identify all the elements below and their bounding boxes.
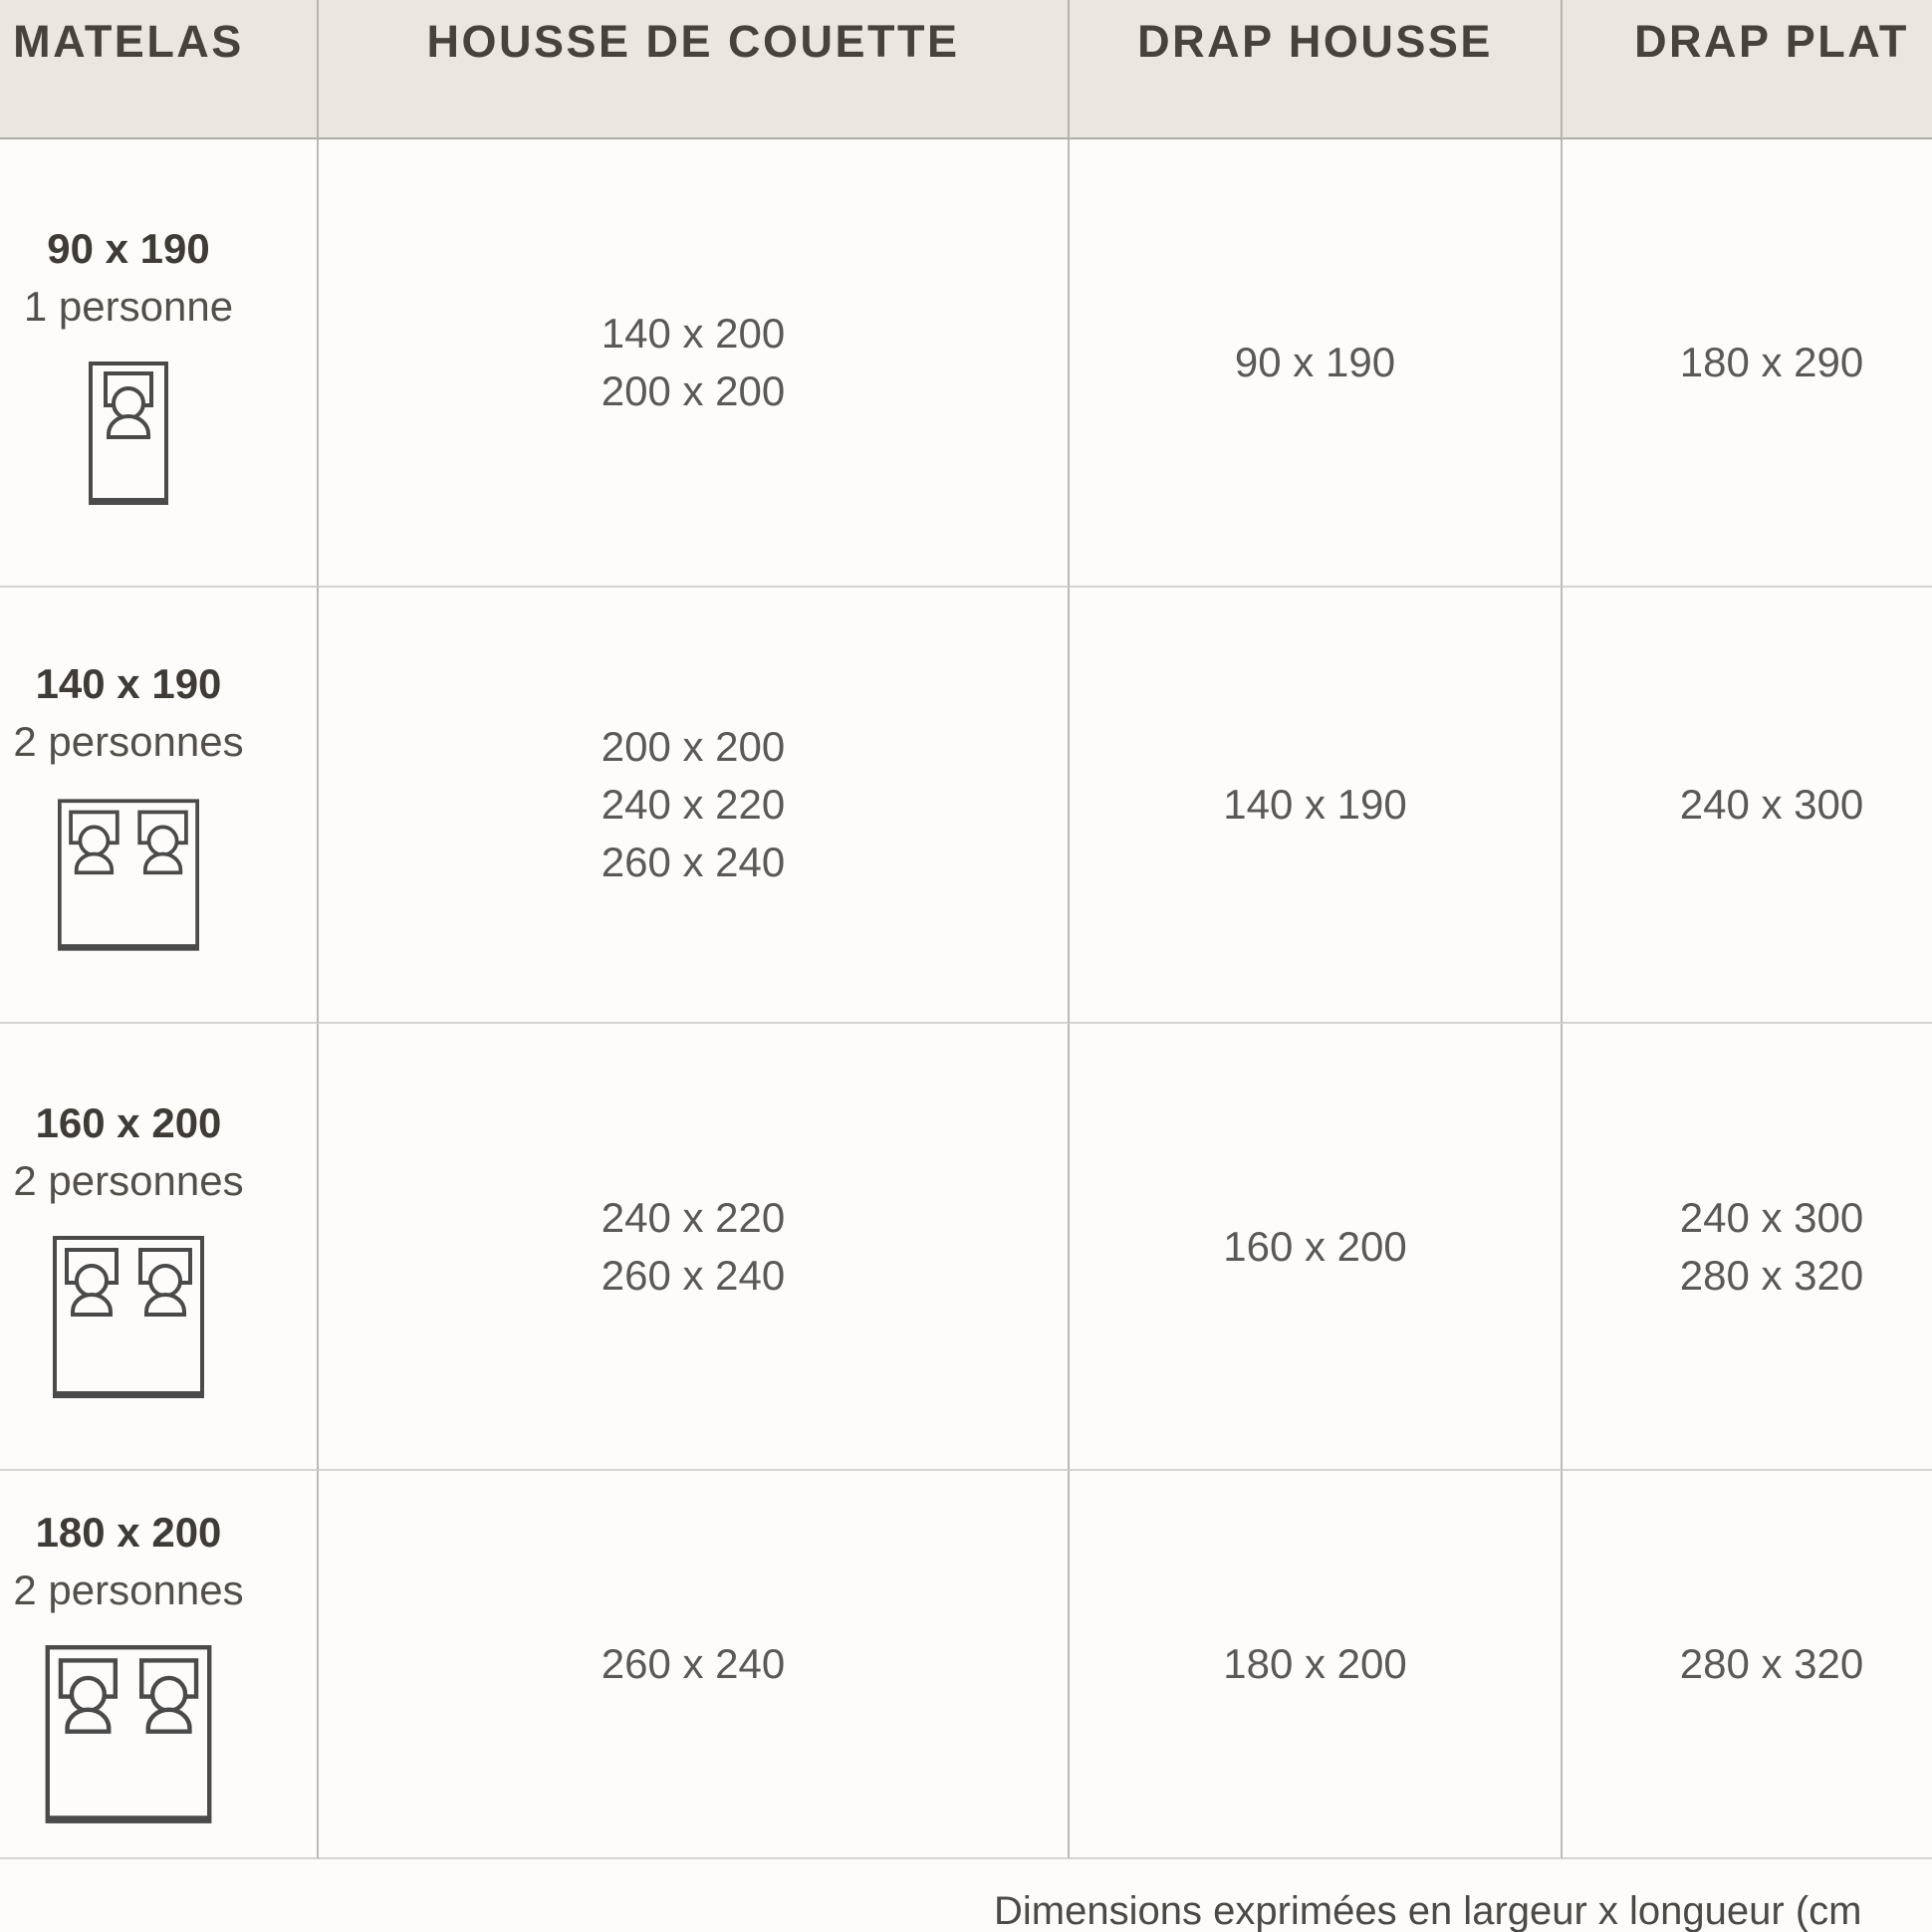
table-row: 90 x 190 1 personne 140 x 200 200 x 200 … [0, 139, 1932, 588]
fitted-sheet-size: 180 x 200 [1223, 1635, 1407, 1693]
table-row: 180 x 200 2 personnes 260 x 240 180 x 20… [0, 1471, 1932, 1859]
mattress-size-label: 90 x 190 [47, 220, 210, 278]
housse-de-couette-cell: 140 x 200 200 x 200 [319, 139, 1070, 588]
drap-housse-cell: 90 x 190 [1070, 139, 1563, 588]
capacity-label: 1 personne [24, 278, 233, 336]
column-header-drap-plat: DRAP PLAT [1563, 0, 1932, 139]
flat-sheet-size: 180 x 290 [1680, 334, 1864, 391]
flat-sheet-size: 280 x 320 [1680, 1635, 1864, 1693]
housse-de-couette-cell: 240 x 220 260 x 240 [319, 1024, 1070, 1471]
mattress-size-label: 180 x 200 [36, 1504, 222, 1562]
duvet-cover-size: 200 x 200 [602, 718, 786, 776]
drap-plat-cell: 240 x 300 [1563, 588, 1932, 1024]
flat-sheet-size: 280 x 320 [1680, 1247, 1864, 1305]
drap-housse-cell: 140 x 190 [1070, 588, 1563, 1024]
drap-housse-cell: 180 x 200 [1070, 1471, 1563, 1859]
matelas-cell: 160 x 200 2 personnes [0, 1024, 319, 1471]
duvet-cover-size: 240 x 220 [602, 1189, 786, 1247]
fitted-sheet-size: 140 x 190 [1223, 776, 1407, 834]
double-bed-icon [58, 797, 199, 954]
duvet-cover-size: 260 x 240 [602, 834, 786, 891]
duvet-cover-size: 260 x 240 [602, 1635, 786, 1693]
matelas-cell: 140 x 190 2 personnes [0, 588, 319, 1024]
size-guide-table: MATELAS HOUSSE DE COUETTE DRAP HOUSSE DR… [0, 0, 1932, 1859]
flat-sheet-size: 240 x 300 [1680, 776, 1864, 834]
housse-de-couette-cell: 260 x 240 [319, 1471, 1070, 1859]
dimensions-note: Dimensions exprimées en largeur x longue… [994, 1888, 1861, 1932]
table-row: 140 x 190 2 personnes 200 x 200 240 x 22… [0, 588, 1932, 1024]
matelas-cell: 90 x 190 1 personne [0, 139, 319, 588]
column-header-drap-housse: DRAP HOUSSE [1070, 0, 1563, 139]
single-bed-icon [89, 362, 168, 506]
double-bed-icon [43, 1645, 214, 1824]
mattress-size-label: 160 x 200 [36, 1094, 222, 1152]
housse-de-couette-cell: 200 x 200 240 x 220 260 x 240 [319, 588, 1070, 1024]
drap-plat-cell: 280 x 320 [1563, 1471, 1932, 1859]
flat-sheet-size: 240 x 300 [1680, 1189, 1864, 1247]
duvet-cover-size: 260 x 240 [602, 1247, 786, 1305]
drap-housse-cell: 160 x 200 [1070, 1024, 1563, 1471]
double-bed-icon [52, 1236, 205, 1399]
fitted-sheet-size: 160 x 200 [1223, 1218, 1407, 1276]
table-header-row: MATELAS HOUSSE DE COUETTE DRAP HOUSSE DR… [0, 0, 1932, 139]
capacity-label: 2 personnes [13, 1152, 243, 1210]
capacity-label: 2 personnes [13, 1562, 243, 1619]
bedding-size-guide-page: MATELAS HOUSSE DE COUETTE DRAP HOUSSE DR… [0, 0, 1932, 1932]
drap-plat-cell: 180 x 290 [1563, 139, 1932, 588]
column-header-housse-de-couette: HOUSSE DE COUETTE [319, 0, 1070, 139]
capacity-label: 2 personnes [13, 713, 243, 771]
fitted-sheet-size: 90 x 190 [1235, 334, 1395, 391]
column-header-matelas: MATELAS [0, 0, 319, 139]
drap-plat-cell: 240 x 300 280 x 320 [1563, 1024, 1932, 1471]
matelas-cell: 180 x 200 2 personnes [0, 1471, 319, 1859]
table-row: 160 x 200 2 personnes 240 x 220 260 x 24… [0, 1024, 1932, 1471]
duvet-cover-size: 140 x 200 [602, 305, 786, 362]
duvet-cover-size: 240 x 220 [602, 776, 786, 834]
mattress-size-label: 140 x 190 [36, 655, 222, 713]
duvet-cover-size: 200 x 200 [602, 362, 786, 420]
